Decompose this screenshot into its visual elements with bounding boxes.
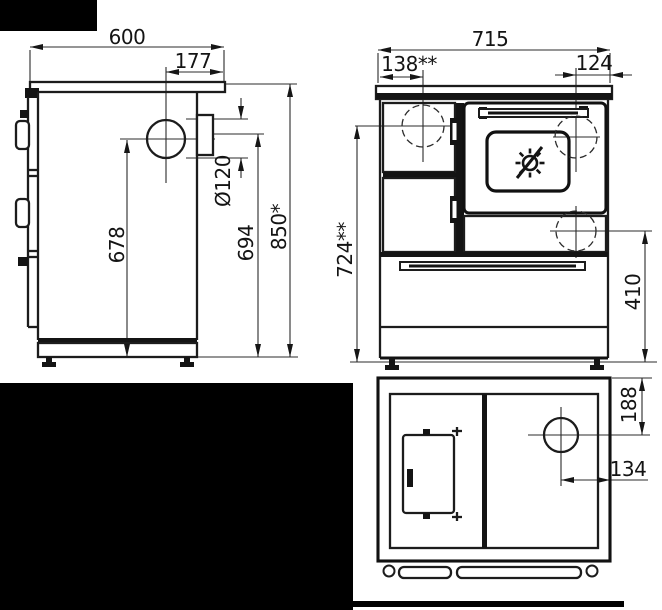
firebox-door-handle xyxy=(450,118,459,145)
dim-flue-offset: 177 xyxy=(175,49,212,73)
ash-door xyxy=(383,178,455,252)
bottom-divider xyxy=(482,394,487,548)
bottom-door-slot xyxy=(407,469,413,487)
redaction-bottom-strip xyxy=(353,601,624,607)
dim-flue-diameter: Ø120 xyxy=(211,155,235,207)
sun-crossed-icon xyxy=(516,147,545,178)
oven-window xyxy=(487,132,569,191)
redaction-top-left xyxy=(0,0,97,31)
runner-right xyxy=(457,567,581,578)
flue-collar xyxy=(197,115,213,155)
runner-left xyxy=(399,567,451,578)
foot-screw-right xyxy=(587,566,598,577)
bottom-inner-frame xyxy=(390,394,598,548)
dim-worktop-height: 850* xyxy=(267,203,291,250)
feet-side xyxy=(42,357,194,367)
dim-front-width: 715 xyxy=(472,27,509,51)
latch-tab-bottom xyxy=(18,257,28,266)
latch-tab-top xyxy=(20,110,29,118)
dim-flue-axis-height: 678 xyxy=(105,227,129,264)
dim-flue-from-right: 134 xyxy=(610,457,647,481)
drawer-handle-bar xyxy=(400,261,585,271)
front-view: 715 138** 124 724** 410 xyxy=(333,27,657,370)
dim-firebox-axis-height: 724** xyxy=(333,222,357,278)
feet-front xyxy=(385,358,604,370)
door-handle-lower-side xyxy=(16,199,29,227)
stove-dimension-drawing: 600 177 Ø120 678 694 850* xyxy=(0,0,662,610)
dim-side-depth: 600 xyxy=(109,25,146,49)
dim-rear-flue-axis-height: 410 xyxy=(621,274,645,311)
door-handle-upper-side xyxy=(16,121,29,149)
firebox-door xyxy=(383,103,455,172)
rear-flue-panel xyxy=(464,216,606,252)
dim-collar-axis-height: 694 xyxy=(234,225,258,262)
plinth-side xyxy=(38,343,197,357)
dim-flue-from-top: 188 xyxy=(617,387,641,424)
redaction-bottom-left xyxy=(0,383,353,610)
dim-flue-axis-offset: 124 xyxy=(576,51,613,75)
dim-firebox-axis-offset: 138** xyxy=(381,52,437,76)
technical-drawing-page: 600 177 Ø120 678 694 850* xyxy=(0,0,662,610)
foot-screw-left xyxy=(384,566,395,577)
side-view: 600 177 Ø120 678 694 850* xyxy=(16,25,298,367)
bottom-view: 188 134 xyxy=(378,378,652,578)
ash-door-handle xyxy=(450,196,459,223)
worktop-side xyxy=(30,82,225,92)
